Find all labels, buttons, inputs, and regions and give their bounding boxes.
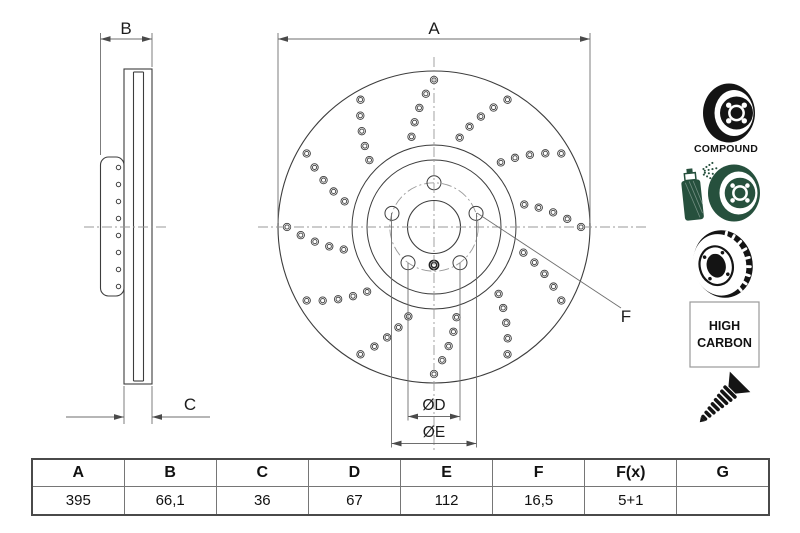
- table-header-fx: F(x): [585, 459, 677, 487]
- drill-hole: [453, 314, 460, 321]
- drill-hole-inner: [505, 352, 509, 356]
- drill-hole-inner: [532, 260, 536, 264]
- drill-hole-inner: [501, 306, 505, 310]
- spray-dot: [708, 172, 710, 174]
- compound-disc-icon: COMPOUND: [694, 84, 758, 156]
- drill-hole-inner: [336, 297, 340, 301]
- drill-hole: [456, 134, 463, 141]
- dimension-table: A B C D E F F(x) G 395 66,1 36 67 112 16…: [31, 458, 770, 516]
- drill-hole-inner: [343, 199, 347, 203]
- spray-can-cap: [684, 173, 696, 181]
- drill-hole: [542, 150, 549, 157]
- drill-hole-inner: [365, 290, 369, 294]
- drill-hole: [521, 201, 528, 208]
- drill-hole: [395, 324, 402, 331]
- table-value-e: 112: [401, 487, 493, 516]
- drill-hole-inner: [360, 129, 364, 133]
- drill-hole: [477, 113, 484, 120]
- bolt-hole: [469, 206, 483, 220]
- drill-hole-inner: [385, 335, 389, 339]
- drill-hole: [357, 96, 364, 103]
- hat-bolt-hole: [116, 233, 120, 237]
- spray-dot: [709, 177, 711, 179]
- drill-hole: [330, 188, 337, 195]
- drill-hole-inner: [358, 352, 362, 356]
- drill-hole-inner: [358, 98, 362, 102]
- dim-label-d: ØD: [422, 397, 445, 414]
- drill-hole: [541, 270, 548, 277]
- drill-hole-inner: [551, 284, 555, 288]
- dim-label-e: ØE: [423, 424, 445, 441]
- drill-hole: [358, 127, 365, 134]
- drill-hole-inner: [351, 294, 355, 298]
- rotor-profile: [124, 69, 152, 384]
- drill-hole: [466, 123, 473, 130]
- drill-hole-inner: [506, 336, 510, 340]
- drill-hole: [497, 159, 504, 166]
- vented-disc-3d-icon: [686, 224, 760, 304]
- dimension-arrow: [392, 441, 402, 447]
- dim-label-c: C: [184, 395, 196, 414]
- drill-hole: [422, 90, 429, 97]
- drill-hole: [526, 151, 533, 158]
- dim-label-a: A: [428, 19, 440, 38]
- drill-hole-inner: [504, 321, 508, 325]
- drill-hole: [366, 156, 373, 163]
- hat-bolt-hole: [116, 216, 120, 220]
- drill-hole-inner: [312, 165, 316, 169]
- coated-hub-hole: [730, 183, 735, 188]
- drill-hole-inner: [454, 315, 458, 319]
- table-value-row: 395 66,1 36 67 112 16,5 5+1: [32, 487, 769, 516]
- drill-hole: [361, 142, 368, 149]
- drill-hole: [520, 249, 527, 256]
- dim-label-f: F: [621, 307, 631, 326]
- drill-hole-inner: [358, 114, 362, 118]
- coated-hub-bore: [735, 188, 746, 199]
- drill-hole-inner: [513, 156, 517, 160]
- drill-hole: [511, 154, 518, 161]
- drill-hole-inner: [440, 358, 444, 362]
- dimension-arrow: [152, 414, 162, 420]
- hat-bolt-hole: [116, 165, 120, 169]
- drill-hole-inner: [363, 144, 367, 148]
- drill-hole: [450, 328, 457, 335]
- dimension-arrow: [408, 414, 418, 420]
- table-value-d: 67: [308, 487, 400, 516]
- drill-hole: [564, 215, 571, 222]
- spray-dot: [712, 173, 714, 175]
- hat-bolt-hole: [116, 284, 120, 288]
- drill-hole: [504, 335, 511, 342]
- dimension-arrow: [467, 441, 477, 447]
- vent-slot: [746, 265, 752, 268]
- drill-hole: [531, 259, 538, 266]
- coated-hub-hole: [730, 198, 735, 203]
- drill-hole-inner: [332, 189, 336, 193]
- table-header-b: B: [124, 459, 216, 487]
- spray-dot: [708, 169, 710, 171]
- drill-hole-inner: [396, 325, 400, 329]
- drill-hole-inner: [467, 125, 471, 129]
- table-header-row: A B C D E F F(x) G: [32, 459, 769, 487]
- table-value-g: [677, 487, 769, 516]
- hat-bolt-hole: [116, 182, 120, 186]
- drill-hole: [357, 112, 364, 119]
- drill-hole-inner: [537, 205, 541, 209]
- dimension-arrow: [101, 36, 111, 42]
- drill-hole: [549, 209, 556, 216]
- hat-bolt-hole: [116, 267, 120, 271]
- spray-can-nozzle: [686, 168, 692, 173]
- spray-dot: [715, 167, 717, 169]
- dimension-arrow: [450, 414, 460, 420]
- drill-hole: [535, 204, 542, 211]
- side-view: [84, 69, 168, 384]
- high-carbon-line2: CARBON: [697, 336, 752, 350]
- drill-hole-inner: [342, 247, 346, 251]
- drill-hole-inner: [543, 151, 547, 155]
- high-carbon-label: HIGH CARBON: [690, 302, 759, 367]
- drill-hole: [438, 357, 445, 364]
- drill-hole-inner: [299, 233, 303, 237]
- compound-hub-bore: [731, 107, 743, 119]
- drill-hole: [550, 283, 557, 290]
- drill-hole-inner: [424, 92, 428, 96]
- coating-spray-icon: [680, 162, 760, 222]
- hat-profile: [101, 157, 125, 296]
- drill-hole-inner: [522, 202, 526, 206]
- coated-hub-hole: [745, 183, 750, 188]
- spray-dot: [703, 174, 705, 176]
- dimension-arrow: [278, 36, 288, 42]
- drill-hole: [319, 297, 326, 304]
- drill-hole-inner: [321, 178, 325, 182]
- dimension-arrow: [114, 414, 124, 420]
- dimension-b: B: [101, 19, 153, 155]
- drill-hole-inner: [372, 344, 376, 348]
- drill-hole-inner: [559, 298, 563, 302]
- table-header-f: F: [493, 459, 585, 487]
- drill-hole-inner: [505, 98, 509, 102]
- icon-column: COMPOUND: [680, 84, 760, 433]
- drill-hole-inner: [447, 344, 451, 348]
- drill-hole: [326, 243, 333, 250]
- drill-hole-inner: [305, 298, 309, 302]
- drill-hole: [504, 96, 511, 103]
- drill-hole-inner: [367, 158, 371, 162]
- dimension-c: C: [66, 386, 210, 424]
- technical-drawing: BCAØDØEF: [66, 19, 648, 450]
- drill-hole-inner: [409, 135, 413, 139]
- drill-hole-inner: [458, 136, 462, 140]
- drill-hole: [504, 351, 511, 358]
- spray-dot: [711, 162, 713, 164]
- spray-dot: [702, 168, 704, 170]
- table-header-a: A: [32, 459, 124, 487]
- drill-hole: [341, 198, 348, 205]
- drill-hole: [303, 297, 310, 304]
- drill-hole-inner: [551, 210, 555, 214]
- drill-hole: [311, 164, 318, 171]
- brake-disc-spec-sheet: BCAØDØEF COMPOUND: [0, 0, 800, 533]
- drill-hole: [416, 104, 423, 111]
- spray-dot: [706, 175, 708, 177]
- dim-label-b: B: [120, 19, 131, 38]
- countersunk-screw-icon: [690, 372, 751, 433]
- spray-dot: [713, 179, 715, 181]
- drawing-canvas: BCAØDØEF COMPOUND: [0, 0, 800, 533]
- spray-can: [680, 168, 704, 221]
- spray-dot: [716, 173, 718, 175]
- table-header-g: G: [677, 459, 769, 487]
- drill-hole: [383, 334, 390, 341]
- drill-hole: [495, 290, 502, 297]
- table-header-d: D: [308, 459, 400, 487]
- drill-hole-inner: [499, 160, 503, 164]
- drill-hole: [408, 133, 415, 140]
- drill-hole: [490, 104, 497, 111]
- f-leader: F: [477, 213, 631, 326]
- drill-hole: [558, 150, 565, 157]
- coated-hub-hole: [745, 198, 750, 203]
- drill-hole: [445, 342, 452, 349]
- drill-hole: [320, 176, 327, 183]
- drill-hole-inner: [321, 299, 325, 303]
- drill-hole: [363, 288, 370, 295]
- drill-hole: [499, 304, 506, 311]
- spray-dot: [705, 166, 707, 168]
- drill-hole-inner: [521, 251, 525, 255]
- dimension-arrow: [580, 36, 590, 42]
- spray-dot: [711, 168, 713, 170]
- drill-hole: [371, 343, 378, 350]
- drill-hole-inner: [327, 244, 331, 248]
- spray-dot: [708, 164, 710, 166]
- table-value-fx: 5+1: [585, 487, 677, 516]
- table-value-c: 36: [216, 487, 308, 516]
- drill-hole-inner: [528, 153, 532, 157]
- spray-dot: [704, 170, 706, 172]
- hat-bolt-hole: [116, 199, 120, 203]
- drill-hole-inner: [559, 151, 563, 155]
- drill-hole-inner: [497, 292, 501, 296]
- high-carbon-box: [690, 302, 759, 367]
- drill-hole-inner: [491, 105, 495, 109]
- drill-hole-inner: [451, 330, 455, 334]
- drill-hole: [503, 319, 510, 326]
- drill-hole-inner: [565, 217, 569, 221]
- spray-dot: [704, 172, 706, 174]
- drill-hole: [303, 150, 310, 157]
- drill-hole-inner: [479, 114, 483, 118]
- drill-hole-inner: [417, 106, 421, 110]
- drill-hole: [334, 296, 341, 303]
- drill-hole: [357, 351, 364, 358]
- table-header-e: E: [401, 459, 493, 487]
- drill-hole-inner: [542, 272, 546, 276]
- compound-label: COMPOUND: [694, 143, 758, 155]
- hat-bolt-hole: [116, 250, 120, 254]
- front-view: [258, 57, 648, 450]
- drill-hole: [311, 238, 318, 245]
- drill-hole-inner: [305, 151, 309, 155]
- drill-hole-inner: [313, 240, 317, 244]
- table-value-a: 395: [32, 487, 124, 516]
- drill-hole: [411, 119, 418, 126]
- drill-hole: [297, 231, 304, 238]
- drill-hole: [558, 297, 565, 304]
- drill-hole: [349, 292, 356, 299]
- table-header-c: C: [216, 459, 308, 487]
- drill-hole-inner: [412, 120, 416, 124]
- table-value-b: 66,1: [124, 487, 216, 516]
- high-carbon-line1: HIGH: [709, 319, 740, 333]
- drill-hole: [340, 246, 347, 253]
- dimension-arrow: [142, 36, 152, 42]
- table-value-f: 16,5: [493, 487, 585, 516]
